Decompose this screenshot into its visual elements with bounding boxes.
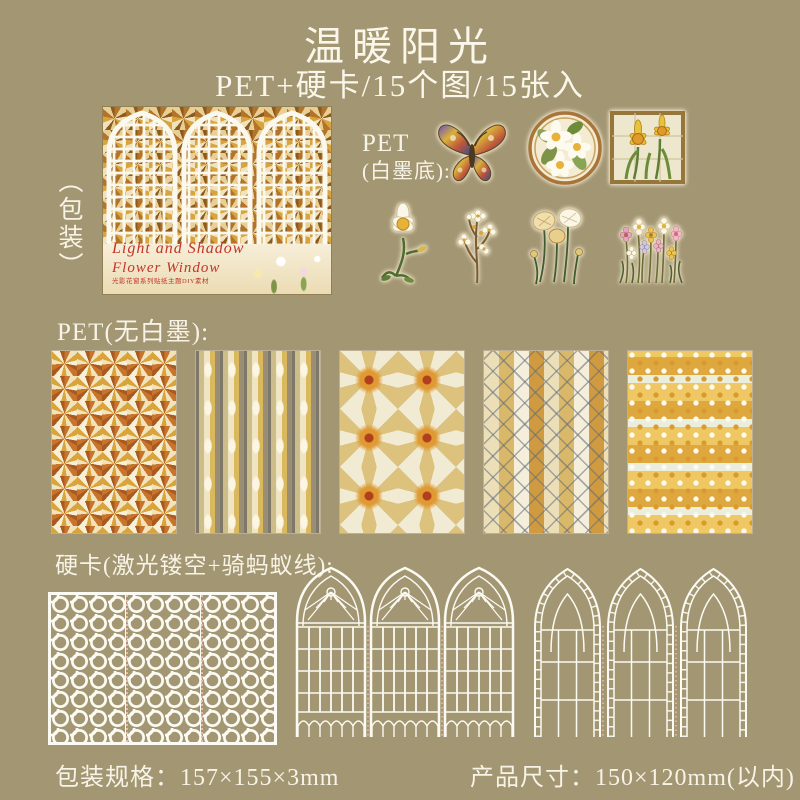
pet-sheet-2 — [196, 351, 320, 533]
daffodil-sticker-icon — [376, 204, 430, 284]
lattice-card — [48, 592, 277, 745]
package-photo: Light and Shadow Flower Window 光影花窗系列贴纸主… — [103, 107, 331, 294]
wildflower-sticker-icon — [614, 209, 688, 285]
gothic-tracery-card — [295, 566, 515, 738]
package-brand-text: Light and Shadow Flower Window 光影花窗系列贴纸主… — [112, 239, 244, 286]
product-poster: 温暖阳光 PET+硬卡/15个图/15张入 （包装） — [0, 0, 800, 800]
brand-line-1: Light and Shadow — [112, 239, 244, 259]
section-label-hard-card: 硬卡(激光镂空+骑蚂蚁线): — [55, 546, 334, 580]
section-label-pet-clear: PET(无白墨): — [57, 312, 209, 348]
package-side-label: （包装） — [50, 168, 86, 280]
pet-sheet-1 — [52, 351, 176, 533]
round-medallion-sticker-icon — [527, 110, 603, 186]
brand-subtext: 光影花窗系列贴纸主题DIY素材 — [112, 278, 244, 286]
poppy-sticker-icon — [524, 206, 590, 286]
pet-sheet-3 — [340, 351, 464, 533]
ant-line — [126, 595, 128, 742]
product-size-text: 产品尺寸：150×120mm(以内) — [470, 757, 795, 792]
page-subtitle: PET+硬卡/15个图/15张入 — [0, 60, 800, 105]
brand-line-2: Flower Window — [112, 259, 244, 278]
pet-sheet-4 — [484, 351, 608, 533]
ant-line — [201, 595, 203, 742]
square-daffodil-sticker-icon — [610, 111, 685, 184]
pet-sheet-5 — [628, 351, 752, 533]
butterfly-sticker-icon — [433, 116, 511, 188]
package-window-lattice — [103, 107, 331, 249]
blossom-branch-sticker-icon — [452, 203, 502, 285]
gothic-pane-card — [533, 566, 747, 738]
package-spec-text: 包装规格：157×155×3mm — [55, 757, 339, 792]
